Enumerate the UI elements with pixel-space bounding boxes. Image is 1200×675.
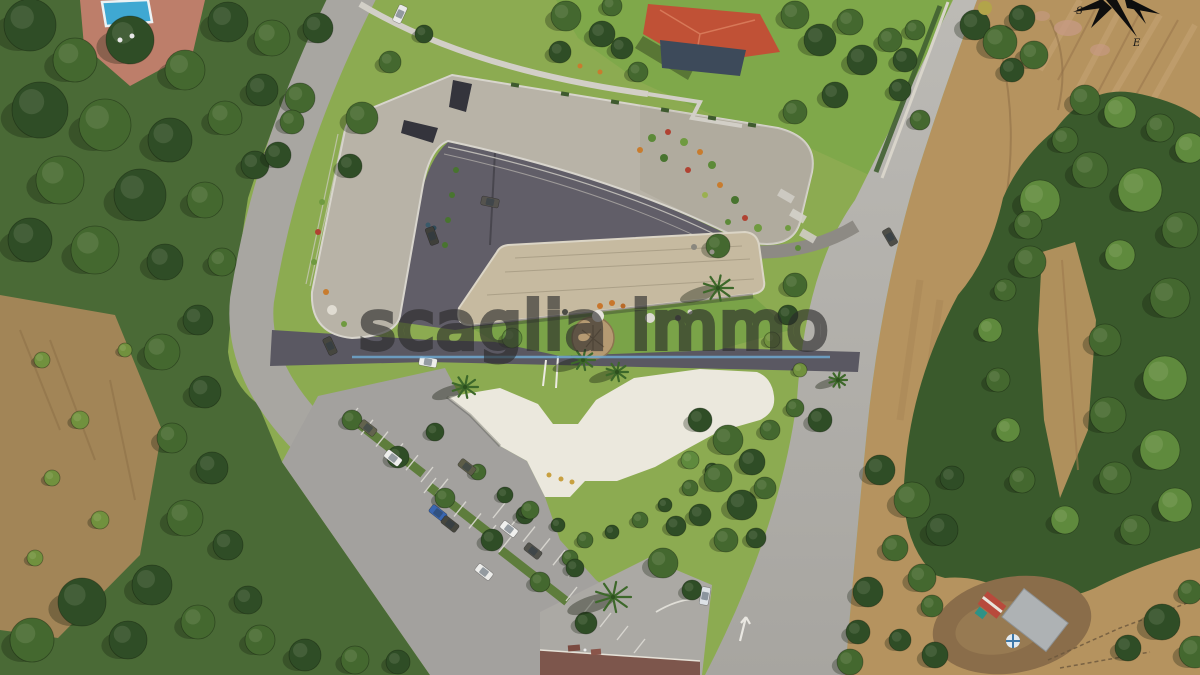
compass-south-label: S — [1076, 6, 1083, 17]
garden-detail — [598, 70, 603, 75]
garden-detail — [570, 480, 575, 485]
garden-detail — [445, 217, 451, 223]
garden-detail — [685, 167, 691, 173]
garden-detail — [341, 321, 347, 327]
garden-detail — [680, 138, 688, 146]
garden-detail — [660, 154, 668, 162]
garden-detail — [319, 199, 325, 205]
garden-detail — [130, 34, 135, 39]
garden-detail — [584, 649, 587, 652]
garden-detail — [311, 259, 317, 265]
garden-detail — [742, 215, 748, 221]
garden-detail — [725, 219, 731, 225]
garden-detail — [327, 305, 337, 315]
garden-detail — [702, 192, 708, 198]
garden-detail — [708, 161, 716, 169]
garden-detail — [315, 229, 321, 235]
site-plan-rendering: S E scaglia immo — [0, 0, 1200, 675]
garden-detail — [648, 134, 656, 142]
garden-detail — [547, 473, 552, 478]
garden-detail — [731, 196, 739, 204]
garden-detail — [710, 250, 715, 255]
watermark: scaglia immo — [352, 290, 830, 364]
garden-detail — [978, 1, 992, 15]
garden-detail — [717, 182, 723, 188]
aerial-site-plan: S E scaglia immo — [0, 0, 1200, 675]
garden-detail — [795, 245, 801, 251]
garden-detail — [697, 149, 703, 155]
garden-detail — [453, 167, 459, 173]
garden-detail — [785, 225, 791, 231]
compass-east-label: E — [1132, 38, 1141, 49]
garden-detail — [637, 147, 643, 153]
garden-detail — [426, 223, 431, 228]
garden-detail — [559, 477, 564, 482]
garden-detail — [665, 129, 671, 135]
garden-detail — [754, 224, 762, 232]
garden-detail — [691, 244, 697, 250]
garden-detail — [578, 64, 583, 69]
garden-detail — [323, 289, 329, 295]
garden-detail — [442, 242, 448, 248]
watermark-text: scaglia immo — [360, 290, 830, 364]
garden-detail — [449, 192, 455, 198]
garden-detail — [118, 38, 123, 43]
